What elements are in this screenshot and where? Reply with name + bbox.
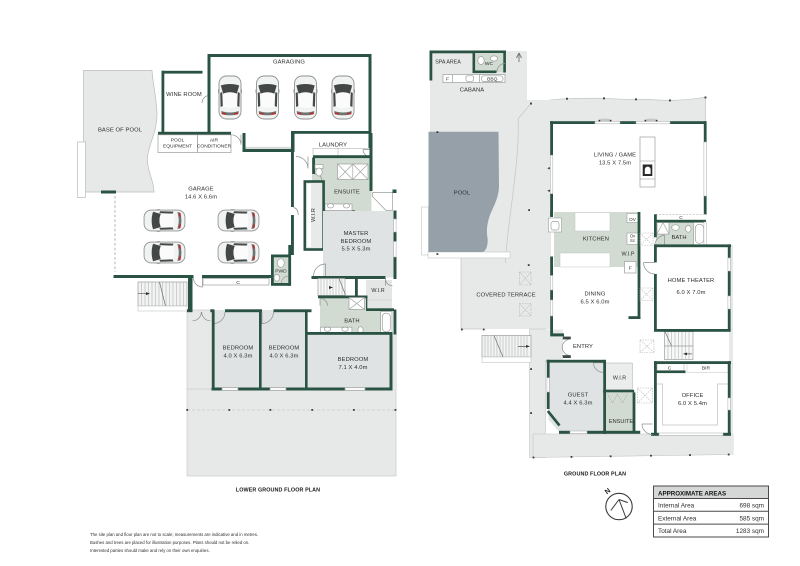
- svg-text:KITCHEN: KITCHEN: [583, 237, 609, 243]
- svg-text:BBQ: BBQ: [487, 77, 498, 83]
- svg-text:WC: WC: [485, 61, 494, 67]
- svg-text:External Area: External Area: [658, 515, 697, 522]
- svg-text:DINING: DINING: [585, 292, 606, 298]
- svg-text:4.0 X 6.3m: 4.0 X 6.3m: [223, 354, 252, 360]
- svg-text:APPROXIMATE AREAS: APPROXIMATE AREAS: [658, 491, 726, 498]
- svg-text:CABANA: CABANA: [460, 88, 484, 94]
- svg-text:585 sqm: 585 sqm: [739, 515, 764, 522]
- svg-text:LAUNDRY: LAUNDRY: [319, 143, 347, 149]
- svg-text:AIR: AIR: [210, 138, 219, 144]
- svg-text:OFFICE: OFFICE: [682, 393, 704, 399]
- svg-text:BASE OF POOL: BASE OF POOL: [98, 128, 143, 134]
- svg-text:BEDROOM: BEDROOM: [223, 346, 254, 352]
- svg-text:SPA AREA: SPA AREA: [435, 60, 461, 66]
- svg-text:Interested parties should make: Interested parties should make and rely …: [90, 548, 210, 553]
- svg-text:5.5 X 5.3m: 5.5 X 5.3m: [341, 247, 370, 253]
- svg-text:14.6 X 6.6m: 14.6 X 6.6m: [185, 195, 217, 201]
- svg-text:GARAGING: GARAGING: [273, 60, 305, 66]
- svg-text:BEDROOM: BEDROOM: [338, 357, 369, 363]
- svg-text:1283 sqm: 1283 sqm: [736, 528, 764, 535]
- svg-text:13.5 X 7.5m: 13.5 X 7.5m: [599, 161, 631, 167]
- svg-text:BIR: BIR: [702, 365, 711, 371]
- svg-text:HOME THEATER: HOME THEATER: [668, 278, 715, 284]
- svg-text:6.5 X 6.0m: 6.5 X 6.0m: [580, 300, 609, 306]
- svg-text:BEDROOM: BEDROOM: [269, 346, 300, 352]
- svg-text:BATH: BATH: [344, 319, 359, 325]
- svg-text:PWD: PWD: [275, 269, 287, 275]
- svg-text:Bushes and trees are placed fo: Bushes and trees are placed for illustra…: [90, 540, 249, 545]
- svg-text:Total Area: Total Area: [658, 528, 687, 535]
- svg-text:MASTER: MASTER: [344, 231, 369, 237]
- svg-text:698 sqm: 698 sqm: [739, 503, 764, 510]
- svg-text:OV: OV: [629, 217, 637, 222]
- svg-text:6.0 X 7.0m: 6.0 X 7.0m: [676, 290, 705, 296]
- svg-text:ENSUITE: ENSUITE: [609, 419, 634, 425]
- svg-text:The site plan and floor plan a: The site plan and floor plan are not to …: [90, 532, 258, 537]
- svg-text:Internal Area: Internal Area: [658, 503, 695, 510]
- svg-text:7.1 X 4.0m: 7.1 X 4.0m: [338, 365, 367, 371]
- svg-text:ENTRY: ENTRY: [573, 344, 593, 350]
- svg-text:CONDITIONER: CONDITIONER: [197, 144, 232, 150]
- svg-text:EQUIPMENT: EQUIPMENT: [163, 144, 192, 150]
- svg-text:GUEST: GUEST: [568, 393, 589, 399]
- svg-text:POOL: POOL: [454, 191, 471, 197]
- svg-text:6.0 X 5.4m: 6.0 X 5.4m: [678, 401, 707, 407]
- svg-text:F: F: [629, 266, 632, 272]
- svg-text:Sc: Sc: [630, 238, 635, 243]
- svg-text:ENSUITE: ENSUITE: [334, 190, 360, 196]
- svg-text:WINE ROOM: WINE ROOM: [166, 92, 202, 98]
- svg-text:GROUND FLOOR PLAN: GROUND FLOOR PLAN: [564, 472, 626, 478]
- svg-text:4.0 X 6.3m: 4.0 X 6.3m: [269, 354, 298, 360]
- svg-text:W.I.R: W.I.R: [613, 376, 626, 382]
- svg-text:W.I.P: W.I.P: [622, 252, 635, 258]
- svg-text:C: C: [668, 365, 672, 371]
- svg-text:GARAGE: GARAGE: [188, 187, 213, 193]
- svg-text:W.I.R: W.I.R: [371, 288, 384, 294]
- svg-text:4.4 X 6.3m: 4.4 X 6.3m: [563, 401, 592, 407]
- svg-text:BATH: BATH: [671, 235, 686, 241]
- svg-text:COVERED TERRACE: COVERED TERRACE: [476, 293, 535, 299]
- svg-text:BEDROOM: BEDROOM: [341, 239, 372, 245]
- svg-text:F: F: [446, 77, 449, 83]
- svg-text:POOL: POOL: [171, 138, 185, 144]
- svg-text:W.I.R: W.I.R: [311, 208, 317, 222]
- svg-text:LOWER GROUND FLOOR PLAN: LOWER GROUND FLOOR PLAN: [236, 488, 320, 494]
- svg-text:LIVING / GAME: LIVING / GAME: [594, 153, 636, 159]
- svg-text:C: C: [236, 280, 240, 286]
